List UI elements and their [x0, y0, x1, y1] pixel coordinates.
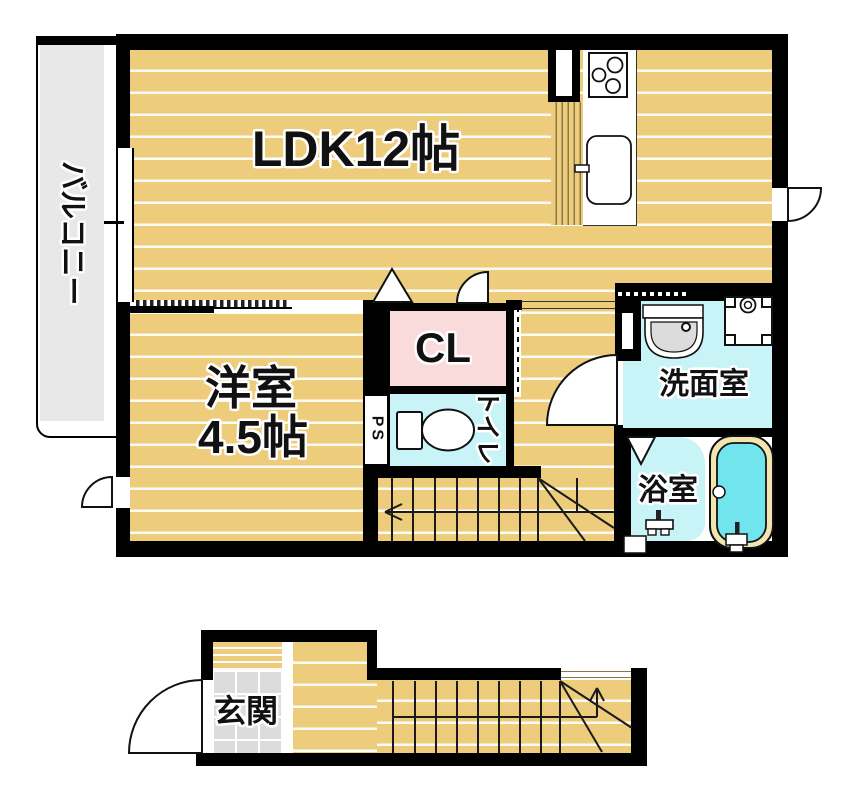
bathroom-hatch-box — [624, 536, 646, 553]
ldk-entry-door-arc — [788, 188, 821, 221]
bathroom-label: 浴室 — [608, 475, 728, 507]
sink-icon — [575, 136, 631, 204]
floorplan: LDK12帖 洋室 4.5帖 CL 洗面室 浴室 玄関 トイレ PS バルコニー — [0, 0, 857, 800]
stairs-1f-arrow-head — [590, 688, 597, 701]
pipe-space-label: PS — [368, 399, 385, 459]
stairs-1f — [393, 681, 632, 753]
stairs-2f-arrow-head — [385, 504, 402, 512]
stove-icon — [589, 53, 627, 97]
closet-folding-door-triangle — [373, 269, 412, 302]
washroom-door-arc — [547, 355, 617, 425]
bath-mixer-icon — [646, 510, 673, 535]
western-room-door-arc — [82, 477, 112, 507]
toilet-label: トイレ — [474, 383, 500, 471]
western-room-label: 洋室 — [151, 364, 351, 412]
closet-label: CL — [393, 326, 493, 370]
bathroom-folding-door-triangle — [627, 437, 655, 464]
ldk-label: LDK12帖 — [196, 123, 516, 176]
western-room-size-label: 4.5帖 — [153, 413, 353, 461]
closet-swing-door-arc — [457, 272, 488, 303]
washing-machine-pan-icon — [725, 297, 772, 345]
washbasin-icon — [643, 305, 703, 358]
toilet-icon — [397, 410, 474, 451]
washroom-label: 洗面室 — [624, 369, 784, 401]
balcony-label: バルコニー — [57, 143, 87, 323]
stairs-2f — [385, 478, 614, 541]
entrance-label: 玄関 — [186, 695, 306, 729]
